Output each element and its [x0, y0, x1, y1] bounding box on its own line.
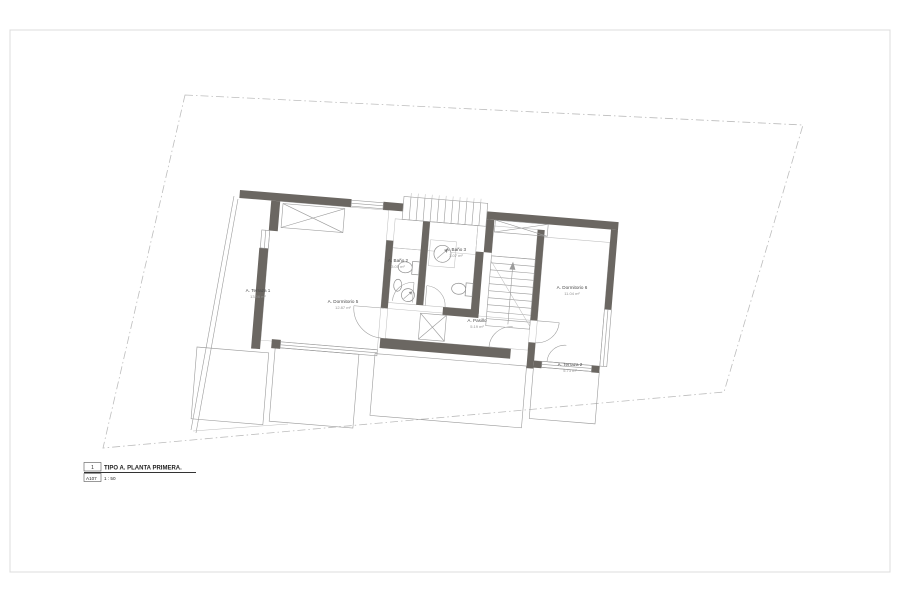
wall-bath3-east: [471, 252, 484, 314]
staircase: [394, 192, 540, 329]
door-bath3: [425, 286, 447, 308]
area-terraza1: 13.06 m²: [250, 294, 266, 299]
area-bano3: 3.07 m²: [449, 253, 463, 258]
wall-dorm6-east: [604, 230, 618, 310]
sink-bath2: [393, 279, 402, 292]
door-hall: [489, 325, 513, 349]
door-dorm6: [535, 321, 559, 345]
plot-boundary: [103, 95, 803, 448]
toilet-bath3: [451, 282, 473, 297]
sheet-ref: A107: [86, 476, 97, 481]
label-bano3: A. Baño 3: [446, 247, 467, 252]
pier-southwest: [271, 339, 281, 349]
wall-dorm5-east: [381, 240, 394, 308]
view-title-block: 1 TIPO A. PLANTA PRIMERA. A107 1 : 50: [84, 463, 196, 482]
label-dormitorio5: A. Dormitorio 5: [328, 299, 359, 304]
view-number: 1: [91, 465, 94, 471]
label-dormitorio6: A. Dormitorio 6: [557, 285, 588, 290]
view-scale: 1 : 50: [104, 476, 116, 481]
label-bano2: A. Baño 2: [388, 258, 409, 263]
area-bano2: 3.05 m²: [391, 264, 405, 269]
view-title: TIPO A. PLANTA PRIMERA.: [104, 466, 182, 472]
area-pasillo: 5.19 m²: [470, 324, 484, 329]
walls: [227, 190, 619, 378]
area-terraza2: 5.73 m²: [563, 368, 577, 373]
pier-dorm6-sw: [533, 361, 542, 369]
pier-northwest: [269, 201, 280, 232]
wall-stair-east: [530, 230, 544, 321]
wall-top-mid: [383, 202, 404, 212]
label-terraza1: A. Terraza 1: [246, 288, 271, 293]
building-plan: [191, 177, 620, 453]
area-dormitorio5: 12.87 m²: [335, 305, 351, 310]
sheet-frame: [10, 30, 890, 572]
pier-dorm6-se: [591, 365, 600, 373]
label-pasillo: A. Pasillo: [467, 318, 487, 323]
terrace1-edge: [191, 196, 288, 433]
area-dormitorio6: 11.04 m²: [564, 291, 580, 296]
wall-stair-west: [484, 219, 495, 253]
door-terraza2: [547, 344, 566, 363]
label-terraza2: A. Terraza 2: [558, 362, 583, 367]
architectural-sheet: A. Terraza 1 13.06 m² A. Dormitorio 5 12…: [0, 0, 900, 600]
